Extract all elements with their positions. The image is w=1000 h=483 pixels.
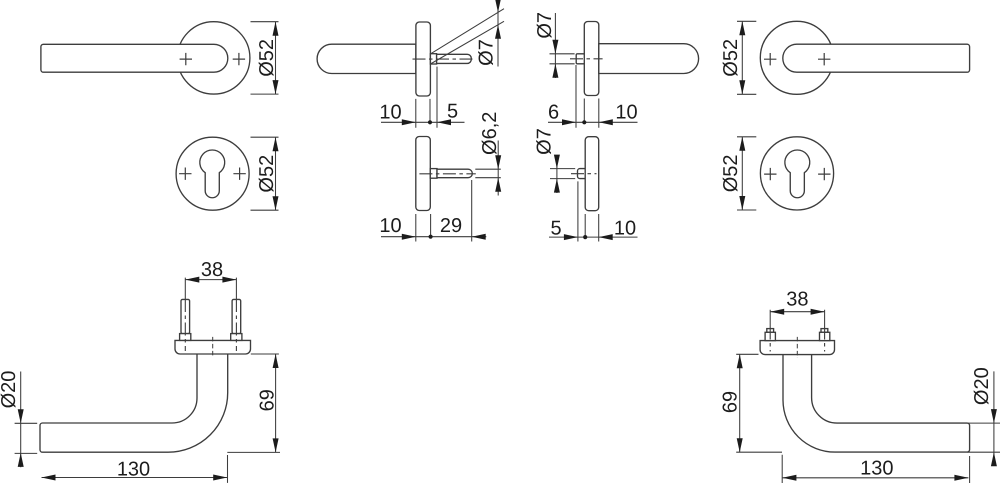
svg-text:69: 69	[719, 391, 741, 413]
svg-text:Ø7: Ø7	[534, 128, 556, 155]
svg-text:Ø7: Ø7	[476, 39, 498, 66]
svg-text:10: 10	[379, 215, 401, 237]
svg-text:29: 29	[440, 215, 462, 237]
svg-text:Ø7: Ø7	[534, 12, 556, 39]
svg-text:38: 38	[201, 259, 223, 281]
svg-text:Ø6,2: Ø6,2	[479, 112, 501, 155]
svg-text:38: 38	[786, 289, 808, 311]
svg-text:69: 69	[257, 389, 279, 411]
svg-text:130: 130	[860, 458, 893, 480]
svg-text:5: 5	[550, 217, 561, 239]
svg-text:Ø52: Ø52	[256, 155, 278, 193]
svg-text:5: 5	[447, 100, 458, 122]
svg-text:Ø20: Ø20	[0, 371, 20, 409]
svg-text:6: 6	[548, 101, 559, 123]
svg-text:Ø52: Ø52	[256, 39, 278, 77]
svg-text:10: 10	[614, 217, 636, 239]
svg-text:Ø52: Ø52	[720, 39, 742, 77]
svg-text:10: 10	[615, 101, 637, 123]
svg-text:10: 10	[379, 101, 401, 123]
svg-text:130: 130	[117, 458, 150, 480]
svg-text:Ø52: Ø52	[720, 154, 742, 192]
svg-text:Ø20: Ø20	[971, 367, 993, 405]
